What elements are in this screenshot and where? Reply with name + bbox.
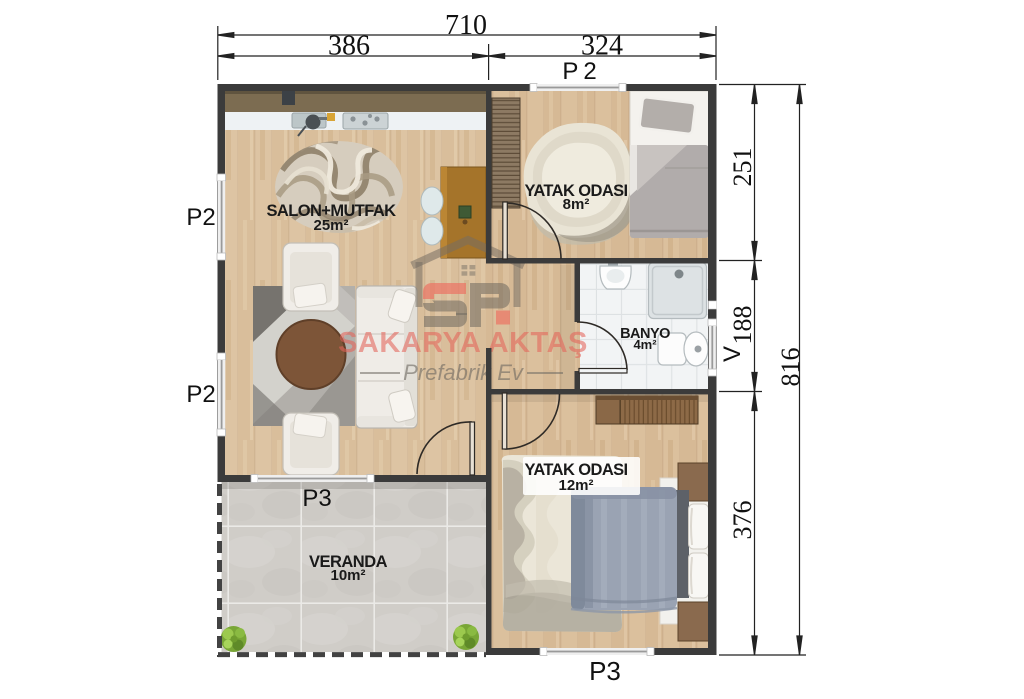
- svg-text:4m²: 4m²: [633, 337, 657, 352]
- svg-text:12m²: 12m²: [558, 477, 593, 494]
- svg-text:386: 386: [328, 31, 370, 62]
- svg-text:Prefabrik Ev: Prefabrik Ev: [403, 360, 525, 385]
- svg-text:816: 816: [776, 348, 805, 387]
- svg-text:P2: P2: [562, 58, 601, 85]
- svg-text:P2: P2: [186, 204, 215, 231]
- svg-text:188: 188: [728, 306, 757, 345]
- svg-text:P3: P3: [589, 656, 621, 686]
- svg-text:376: 376: [728, 501, 757, 540]
- svg-text:324: 324: [581, 31, 623, 62]
- svg-text:251: 251: [728, 148, 757, 187]
- svg-text:P3: P3: [302, 485, 331, 512]
- svg-text:SAKARYA AKTAŞ: SAKARYA AKTAŞ: [338, 327, 588, 359]
- svg-text:710: 710: [445, 10, 487, 41]
- svg-text:10m²: 10m²: [330, 567, 365, 584]
- svg-text:V: V: [719, 346, 746, 362]
- svg-text:25m²: 25m²: [313, 217, 348, 234]
- svg-text:P2: P2: [186, 381, 215, 408]
- svg-text:8m²: 8m²: [563, 196, 590, 213]
